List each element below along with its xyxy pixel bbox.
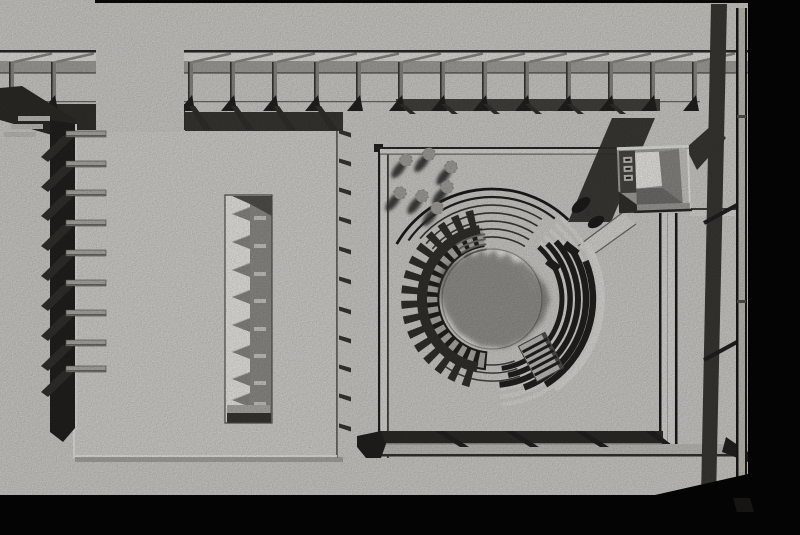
paper-grain <box>0 0 748 495</box>
model-photo <box>0 0 800 535</box>
photo-canvas: Black-and-white aerial photograph of an … <box>0 0 800 535</box>
